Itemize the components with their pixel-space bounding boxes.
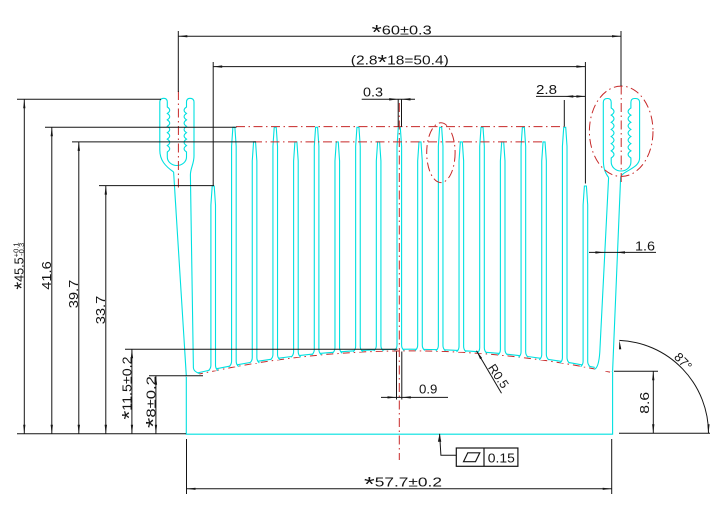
svg-text:41.6: 41.6 xyxy=(40,261,54,290)
svg-text:87°: 87° xyxy=(671,350,694,373)
svg-text:*​11.5±0.2: *​11.5±0.2 xyxy=(119,357,141,420)
svg-text:8.6: 8.6 xyxy=(638,392,652,414)
svg-text:0.15: 0.15 xyxy=(488,452,515,466)
svg-text:R0.5: R0.5 xyxy=(485,361,511,391)
svg-text:33.7: 33.7 xyxy=(94,296,108,325)
svg-text:1.6: 1.6 xyxy=(635,240,655,254)
svg-text:*​57.7±0.2: *​57.7±0.2 xyxy=(364,474,442,496)
svg-text:0.9: 0.9 xyxy=(419,383,437,397)
svg-text:(2.8*​18=50.4): (2.8*​18=50.4) xyxy=(351,52,449,74)
svg-text:2.8: 2.8 xyxy=(536,83,557,97)
svg-text:*​60±0.3: *​60±0.3 xyxy=(372,22,432,44)
svg-text:0.3: 0.3 xyxy=(363,86,383,100)
svg-text:*​8±0.2: *​8±0.2 xyxy=(143,376,165,428)
svg-text:39.7: 39.7 xyxy=(67,280,81,309)
svg-text:*​45.5+0.1-0.3: *​45.5+0.1-0.3 xyxy=(11,242,33,289)
